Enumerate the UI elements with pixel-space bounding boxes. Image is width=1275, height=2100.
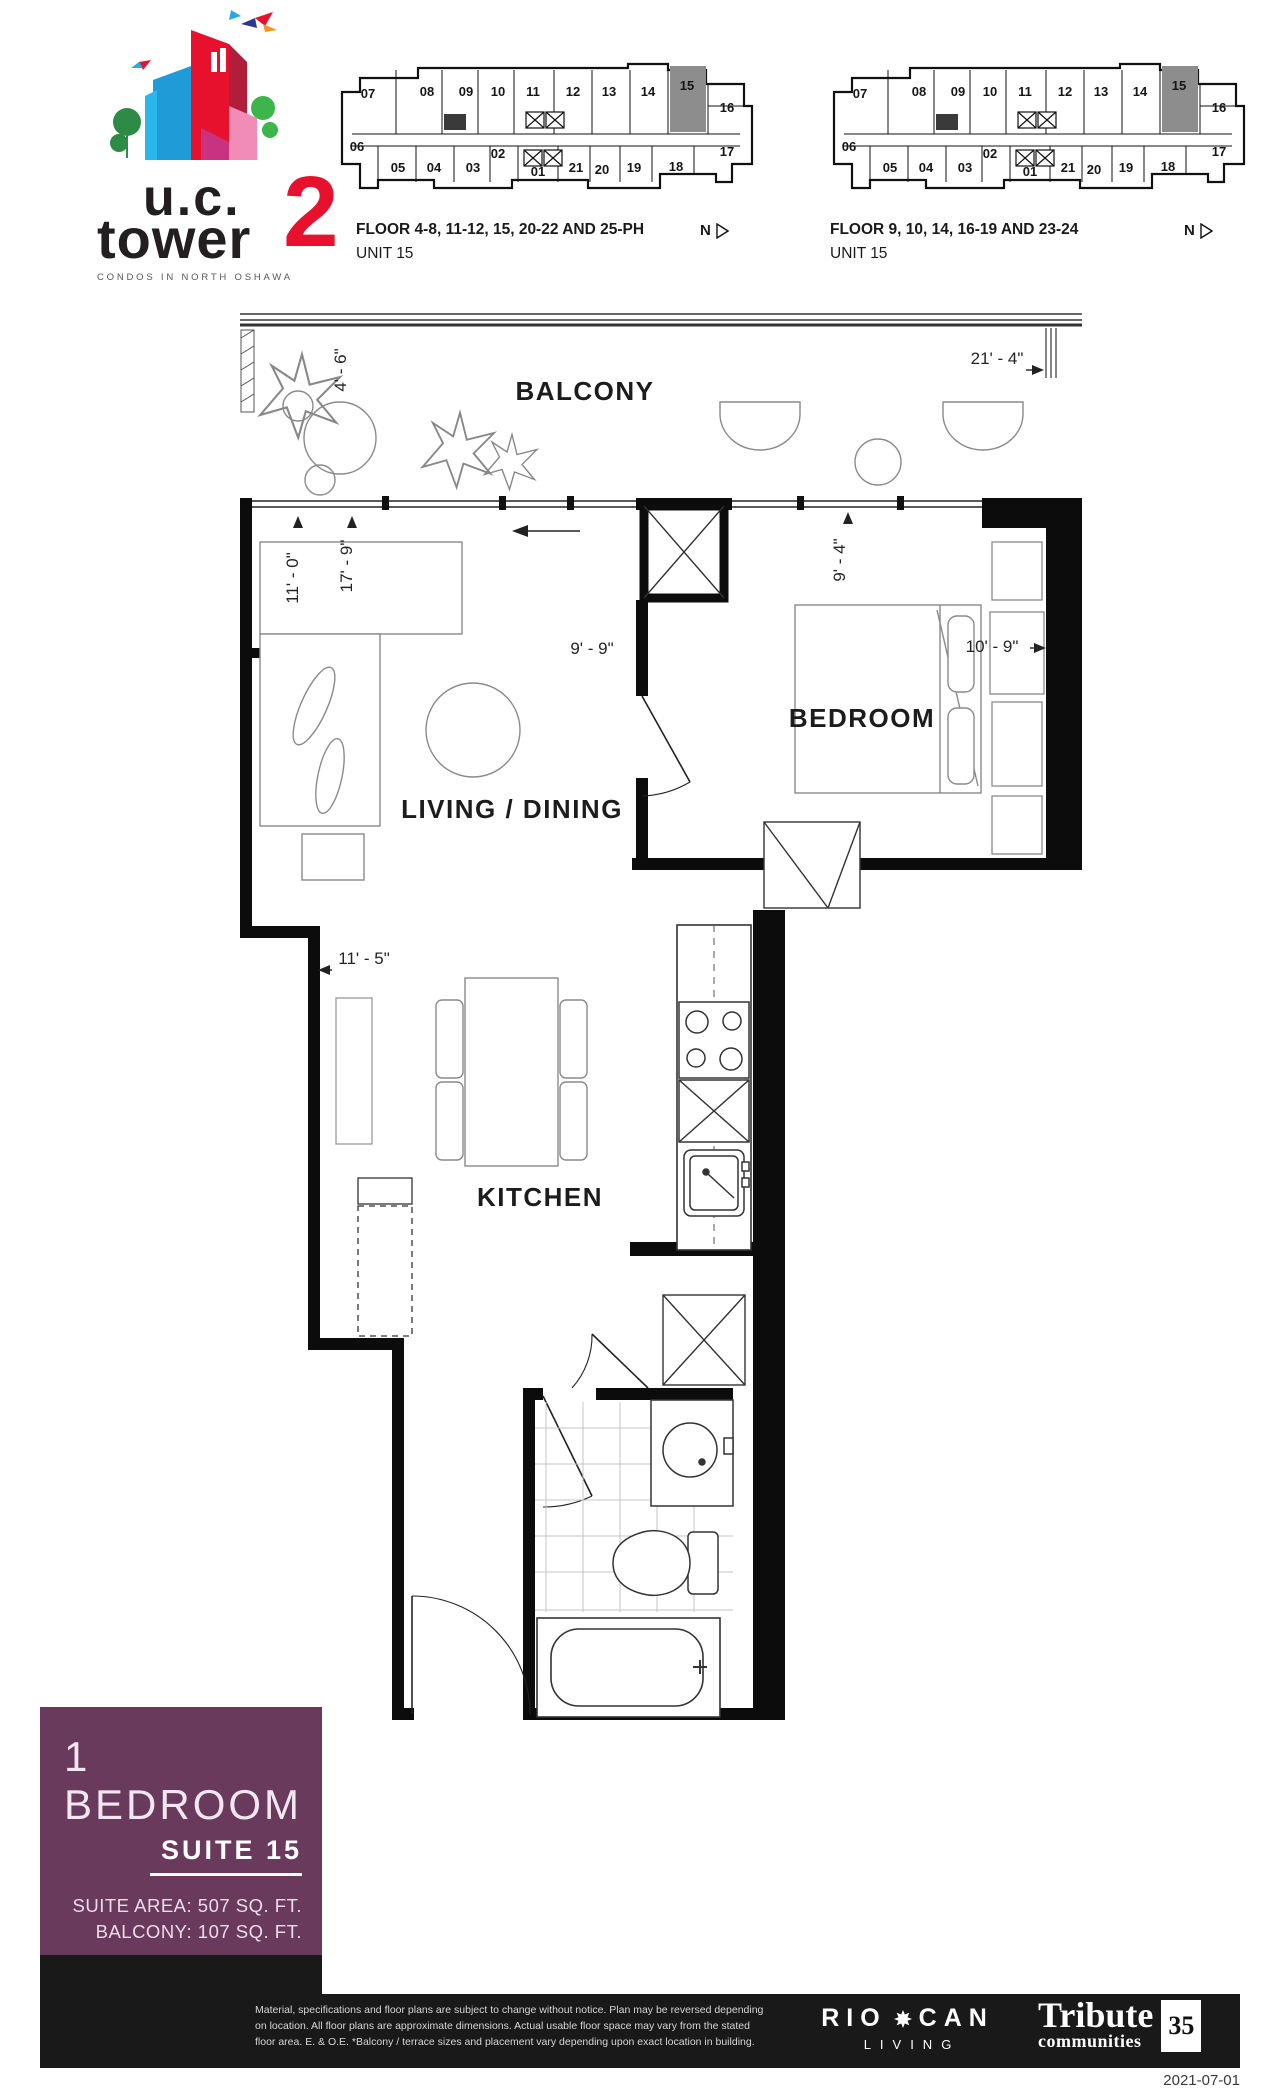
- dim-living-arrows: [293, 516, 357, 528]
- keyplan-unit-08: 08: [912, 84, 926, 99]
- keyplan-unit-19: 19: [627, 160, 641, 175]
- keyplan-unit-21: 21: [1061, 160, 1075, 175]
- keyplan-unit-17: 17: [1212, 144, 1226, 159]
- riocan-living-text: LIVING: [800, 2037, 1015, 2052]
- keyplan-unit-07: 07: [853, 86, 867, 101]
- north-indicator-2: N: [1184, 222, 1213, 239]
- keyplan-unit-15-highlight: [670, 66, 706, 132]
- dim-living-1: 11' - 0": [283, 552, 302, 604]
- suite-number: SUITE 15: [161, 1835, 302, 1866]
- bed: [795, 605, 981, 793]
- keyplan-unit-21: 21: [569, 160, 583, 175]
- logo-building-graphic: [105, 10, 285, 170]
- keyplan-unit-13: 13: [602, 84, 616, 99]
- keyplan-elevator-core: [524, 112, 564, 166]
- keyplan-unit-09: 09: [951, 84, 965, 99]
- fridge: [679, 1080, 749, 1142]
- keyplan-caption-floors: FLOOR 9, 10, 14, 16-19 AND 23-24: [830, 218, 1078, 242]
- keyplan-unit-14: 14: [641, 84, 656, 99]
- keyplan-unit-15: 15: [680, 78, 694, 93]
- keyplan-unit-19: 19: [1119, 160, 1133, 175]
- suite-floorplan: BALCONY LIVING / DINING BEDROOM KITCHEN …: [240, 310, 1090, 1740]
- keyplan-unit-17: 17: [720, 144, 734, 159]
- keyplan-unit-01: 01: [531, 164, 545, 179]
- laundry-closet: [358, 1178, 412, 1336]
- keyplan-unit-12: 12: [566, 84, 580, 99]
- keyplan-floors-9-24: 0708091011121314151617060504030201212019…: [822, 52, 1252, 219]
- keyplan-unit-10: 10: [491, 84, 505, 99]
- tribute-35-badge: 35: [1161, 2000, 1201, 2052]
- keyplan-unit-07: 07: [361, 86, 375, 101]
- keyplan-caption-2: FLOOR 9, 10, 14, 16-19 AND 23-24 UNIT 15: [830, 218, 1078, 266]
- round-rug: [426, 683, 520, 777]
- dim-living-width: 9' - 9": [570, 639, 613, 658]
- date-stamp: 2021-07-01: [1150, 2072, 1240, 2089]
- tribute-communities-logo: Tribute communities 35: [1038, 1999, 1228, 2052]
- keyplan-unit-18: 18: [669, 159, 683, 174]
- bathtub: [537, 1618, 720, 1717]
- balcony-plants: [260, 354, 537, 489]
- bedroom-closet: [764, 822, 860, 908]
- north-indicator-1: N: [700, 222, 729, 239]
- keyplan-unit-15: 15: [1172, 78, 1186, 93]
- window-wall: [252, 501, 982, 507]
- disclaimer-line-1: Material, specifications and floor plans…: [255, 2003, 775, 2019]
- keyplan-caption-1: FLOOR 4-8, 11-12, 15, 20-22 AND 25-PH UN…: [356, 218, 644, 266]
- floorplan-sheet: { "logo": { "line1": "u.c.", "line2": "t…: [0, 0, 1275, 2100]
- bedroom-label: BEDROOM: [789, 703, 935, 733]
- keyplan-unit-10: 10: [983, 84, 997, 99]
- uc-tower-logo: u.c. tower 2 CONDOS IN NORTH OSHAWA: [55, 10, 310, 290]
- keyplan-unit-12: 12: [1058, 84, 1072, 99]
- keyplan-unit-16: 16: [1212, 100, 1226, 115]
- foyer-closet: [663, 1295, 745, 1385]
- keyplan-caption-floors: FLOOR 4-8, 11-12, 15, 20-22 AND 25-PH: [356, 218, 644, 242]
- keyplan-unit-05: 05: [391, 160, 405, 175]
- dim-balcony-depth: 4' - 6": [331, 348, 350, 391]
- riocan-can-text: CAN: [919, 2004, 994, 2033]
- kitchen-sink: [684, 1150, 749, 1216]
- tribute-name: Tribute: [1038, 1999, 1153, 2031]
- disclaimer-line-2: on location. All floor plans are approxi…: [255, 2019, 775, 2035]
- keyplan-elevator-core: [1016, 112, 1056, 166]
- keyplan-unit-03: 03: [466, 160, 480, 175]
- keyplan-unit-20: 20: [1087, 162, 1101, 177]
- keyplan-caption-unit: UNIT 15: [830, 242, 1078, 266]
- toilet: [613, 1531, 718, 1596]
- mechanical-shaft: [644, 506, 724, 598]
- suite-area-text: SUITE AREA: 507 SQ. FT.: [73, 1895, 302, 1917]
- keyplan-unit-20: 20: [595, 162, 609, 177]
- keyplan-unit-18: 18: [1161, 159, 1175, 174]
- north-label: N: [700, 222, 711, 239]
- keyplan-unit-01: 01: [1023, 164, 1037, 179]
- bathroom: [535, 1400, 733, 1717]
- dim-bedroom-width: 10' - 9": [966, 637, 1019, 656]
- footer-disclaimer: Material, specifications and floor plans…: [255, 2003, 775, 2050]
- balcony-furniture: [283, 391, 1023, 495]
- keyplan-unit-14: 14: [1133, 84, 1148, 99]
- keyplan-unit-13: 13: [1094, 84, 1108, 99]
- riocan-living-logo: RIO CAN LIVING: [800, 2004, 1015, 2052]
- keyplan-unit-03: 03: [958, 160, 972, 175]
- disclaimer-line-3: floor area. E. & O.E. *Balcony / terrace…: [255, 2035, 775, 2051]
- north-arrow-icon: [1200, 223, 1213, 239]
- keyplan-unit-05: 05: [883, 160, 897, 175]
- logo-tagline: CONDOS IN NORTH OSHAWA: [97, 272, 293, 283]
- keyplan-stair-core: [936, 114, 958, 130]
- keyplan-unit-04: 04: [427, 160, 442, 175]
- bathroom-sink: [651, 1400, 733, 1506]
- dim-balcony-width: 21' - 4": [971, 349, 1024, 368]
- keyplan-unit-06: 06: [842, 139, 856, 154]
- balcony-railing: [240, 314, 1082, 378]
- dim-bedroom-depth-arrow: [843, 512, 853, 524]
- riocan-rio-text: RIO: [821, 2004, 886, 2033]
- logo-tower-text: tower: [97, 206, 251, 271]
- keyplan-unit-06: 06: [350, 139, 364, 154]
- tribute-sub: communities: [1038, 2031, 1153, 2052]
- keyplan-unit-02: 02: [983, 146, 997, 161]
- dim-bedroom-depth: 9' - 4": [830, 538, 849, 581]
- balcony-label: BALCONY: [515, 376, 654, 406]
- north-arrow-icon: [716, 223, 729, 239]
- maple-leaf-icon: [894, 2009, 912, 2029]
- dining-table: [436, 978, 587, 1166]
- keyplan-unit-02: 02: [491, 146, 505, 161]
- north-label: N: [1184, 222, 1195, 239]
- keyplan-unit-15-highlight: [1162, 66, 1198, 132]
- keyplan-floors-4-8: 0708091011121314151617060504030201212019…: [330, 52, 760, 219]
- dim-balcony-width-arrow: [1026, 365, 1044, 375]
- keyplan-unit-09: 09: [459, 84, 473, 99]
- keyplan-stair-core: [444, 114, 466, 130]
- dim-kitchen-width-arrow: [318, 965, 332, 975]
- keyplan-unit-08: 08: [420, 84, 434, 99]
- dim-living-2: 17' - 9": [337, 540, 356, 593]
- sliding-door-arrow: [512, 525, 580, 537]
- suite-type: 1 BEDROOM: [64, 1733, 322, 1829]
- dim-kitchen-width: 11' - 5": [338, 949, 390, 968]
- living-dining-label: LIVING / DINING: [401, 794, 623, 824]
- balcony-planter: [241, 330, 254, 412]
- suite-underline: [150, 1873, 302, 1876]
- keyplan-unit-04: 04: [919, 160, 934, 175]
- keyplan-unit-16: 16: [720, 100, 734, 115]
- keyplan-unit-11: 11: [526, 84, 540, 99]
- kitchen-label: KITCHEN: [477, 1182, 603, 1212]
- keyplan-unit-11: 11: [1018, 84, 1032, 99]
- stove: [679, 1002, 749, 1078]
- bedroom-dressers: [990, 542, 1044, 854]
- keyplan-caption-unit: UNIT 15: [356, 242, 644, 266]
- balcony-area-text: BALCONY: 107 SQ. FT.: [96, 1921, 302, 1943]
- suite-info-box: 1 BEDROOM SUITE 15 SUITE AREA: 507 SQ. F…: [40, 1707, 322, 1955]
- pantry-closet: [336, 998, 372, 1144]
